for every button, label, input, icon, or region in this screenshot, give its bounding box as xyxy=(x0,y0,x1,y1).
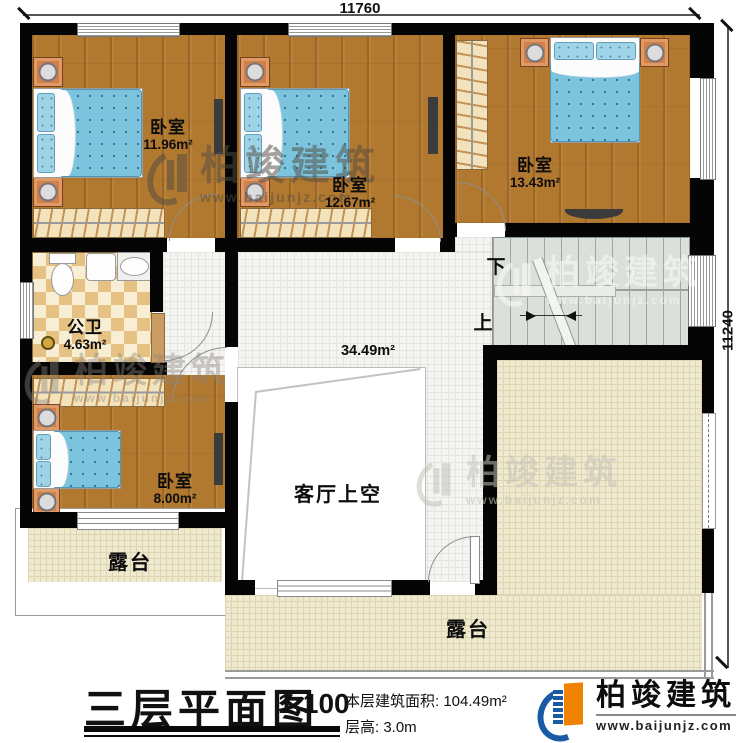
pillow xyxy=(244,93,262,132)
wall xyxy=(443,23,455,252)
room-label-bathroom: 公卫 4.63m² xyxy=(45,318,125,352)
wall xyxy=(505,223,714,237)
wardrobe xyxy=(33,208,165,238)
pillow xyxy=(596,42,636,60)
terrace-railing-line xyxy=(711,593,713,679)
room-name: 公卫 xyxy=(45,318,125,337)
wall xyxy=(702,527,714,593)
nightstand xyxy=(520,38,549,67)
stairs-arrow-left xyxy=(566,311,576,321)
bed-sheet-fold xyxy=(58,90,76,176)
wall xyxy=(690,178,714,255)
nightstand xyxy=(33,177,63,207)
pillow xyxy=(36,434,51,460)
company-logo: 柏竣建筑 www.baijunjz.com xyxy=(538,681,736,734)
wall xyxy=(483,345,714,360)
sliding-door xyxy=(277,580,392,597)
wall xyxy=(690,23,714,78)
wardrobe xyxy=(33,378,165,407)
window xyxy=(77,23,180,37)
plan-scale: 1:100 xyxy=(278,688,350,720)
stairs-arrow-right xyxy=(526,311,536,321)
floor-area-label: 本层建筑面积: 104.49m² xyxy=(345,690,507,711)
room-area: 11.96m² xyxy=(128,137,208,152)
room-area: 8.00m² xyxy=(135,491,215,506)
pillow xyxy=(36,461,51,487)
nightstand xyxy=(33,404,60,431)
bed-sheet-fold xyxy=(551,61,639,78)
wall xyxy=(225,252,238,347)
nightstand xyxy=(33,57,63,87)
pillow xyxy=(554,42,594,60)
bed-sheet-fold xyxy=(265,90,283,176)
wall xyxy=(225,580,255,595)
room-label-bedroom1: 卧室 11.96m² xyxy=(128,118,208,152)
washer-icon xyxy=(86,253,116,281)
terrace-railing-line xyxy=(225,670,714,672)
stairs-down-label: 下 xyxy=(484,252,508,279)
nightstand xyxy=(240,57,270,87)
wardrobe xyxy=(456,40,488,170)
bed-duvet xyxy=(266,89,349,177)
window xyxy=(688,255,716,327)
room-label-bedroom4: 卧室 8.00m² xyxy=(135,472,215,506)
room-label-bedroom2: 卧室 12.67m² xyxy=(310,176,390,210)
company-url: www.baijunjz.com xyxy=(596,714,736,734)
wall xyxy=(177,512,225,528)
room-name: 卧室 xyxy=(128,118,208,137)
wall xyxy=(440,238,455,252)
sliding-window xyxy=(77,512,179,530)
terrace-right-floor-arm xyxy=(497,360,702,595)
wall xyxy=(225,402,238,595)
bed-duvet xyxy=(550,61,640,142)
nightstand xyxy=(640,38,669,67)
wall xyxy=(20,238,167,252)
room-name: 卧室 xyxy=(135,472,215,491)
wall xyxy=(225,23,237,252)
wall xyxy=(483,360,497,593)
tv xyxy=(428,97,438,154)
tv xyxy=(214,433,223,485)
wall xyxy=(390,580,430,595)
wall xyxy=(215,238,395,252)
wall xyxy=(702,360,714,413)
room-name: 卧室 xyxy=(310,176,390,195)
stairs-up-label: 上 xyxy=(471,308,495,335)
room-area: 13.43m² xyxy=(495,175,575,190)
window xyxy=(20,282,34,339)
wall xyxy=(20,362,167,375)
bed-sheet-fold xyxy=(51,432,69,487)
window xyxy=(700,78,716,180)
terrace-right-label: 露台 xyxy=(440,613,496,642)
room-area: 12.67m² xyxy=(310,195,390,210)
room-name: 卧室 xyxy=(495,156,575,175)
door-leaf xyxy=(151,313,165,363)
floor-plan: 柏竣建筑 www.baijunjz.com 柏竣建筑 www.baijunjz.… xyxy=(0,0,750,743)
title-underline-thin xyxy=(84,735,340,737)
living-void-label: 客厅上空 xyxy=(288,478,388,507)
company-logo-icon xyxy=(538,681,588,733)
bed-duvet xyxy=(52,431,121,488)
nightstand xyxy=(240,177,270,207)
terrace-opening xyxy=(702,413,716,529)
hall-floor-strip xyxy=(455,237,492,252)
pillow xyxy=(244,134,262,173)
dimension-top-value: 11760 xyxy=(300,0,420,17)
room-label-bedroom3: 卧室 13.43m² xyxy=(495,156,575,190)
pillow xyxy=(37,93,55,132)
room-area: 4.63m² xyxy=(45,337,125,352)
tv xyxy=(214,99,223,154)
wall xyxy=(20,512,77,528)
company-name: 柏竣建筑 xyxy=(596,681,736,711)
floor-height-label: 层高: 3.0m xyxy=(345,716,417,737)
wardrobe xyxy=(240,208,372,238)
living-void-area: 34.49m² xyxy=(333,343,403,359)
wall xyxy=(390,23,714,35)
wall xyxy=(443,223,457,237)
window xyxy=(288,23,392,37)
terrace-left-label: 露台 xyxy=(104,546,156,575)
pillow xyxy=(37,134,55,173)
wall xyxy=(150,252,163,312)
dimension-right-value: 11240 xyxy=(720,303,737,359)
title-underline xyxy=(84,726,340,732)
sink-icon xyxy=(120,257,149,276)
terrace-railing-line xyxy=(704,593,706,679)
toilet-icon xyxy=(51,263,74,296)
nightstand xyxy=(33,488,60,515)
